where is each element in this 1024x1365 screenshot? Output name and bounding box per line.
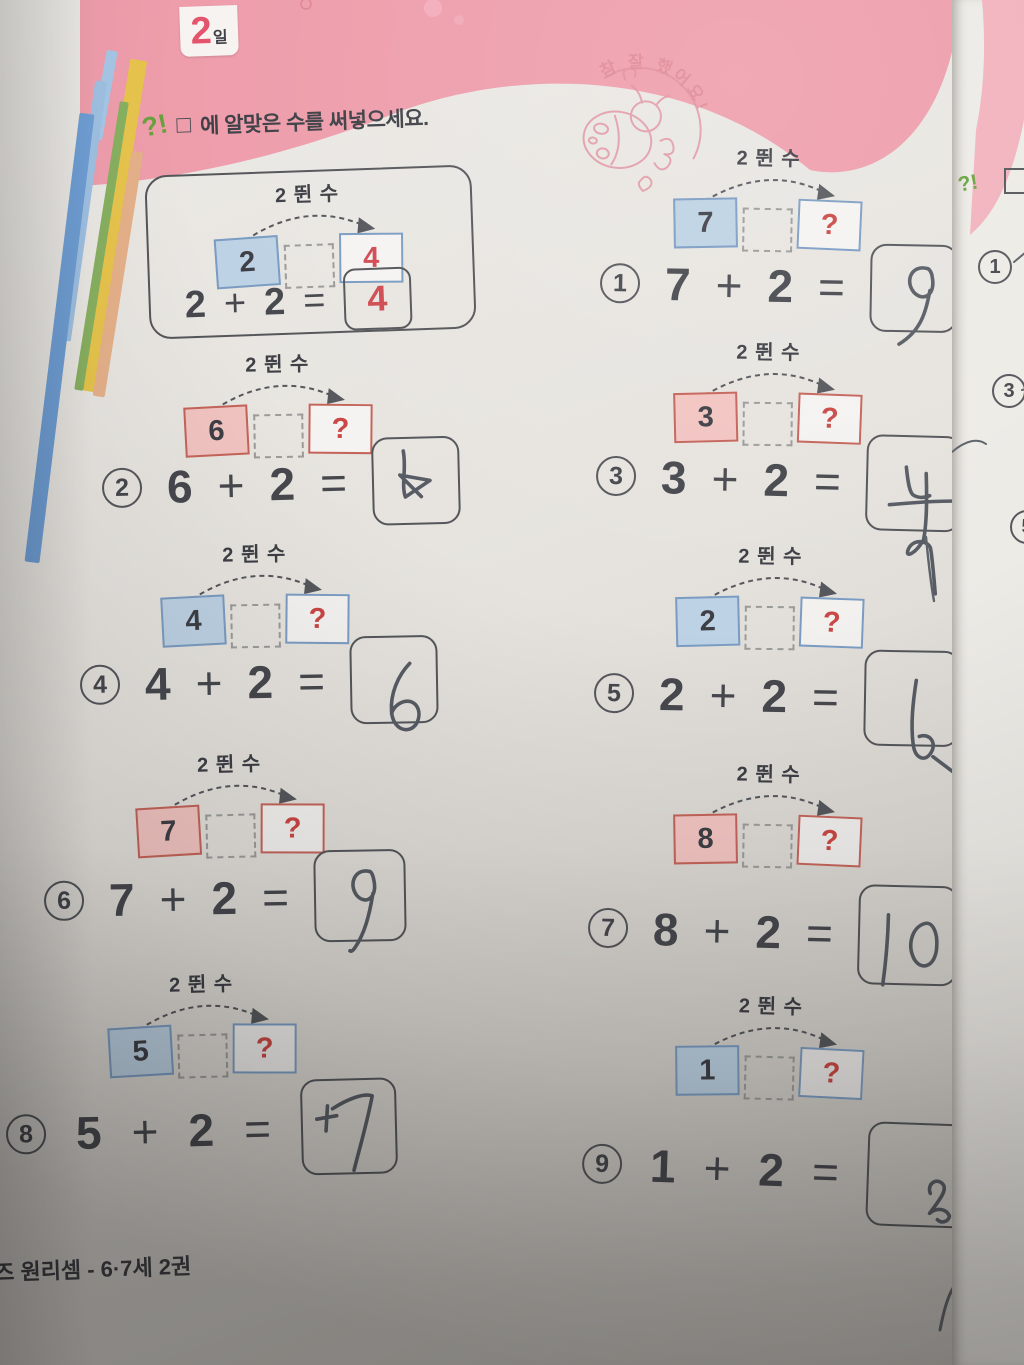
jump-diagram-5: 2 뛴 수 2? — [669, 539, 870, 651]
equation-6: 6 7+ 2= — [43, 849, 406, 947]
addend-a: 3 — [660, 450, 687, 505]
start-number-box: 5 — [107, 1025, 174, 1079]
equals-sign: = — [811, 1144, 840, 1199]
answer-box[interactable] — [865, 434, 963, 532]
middle-empty-box[interactable] — [742, 824, 793, 869]
answer-box[interactable] — [313, 849, 407, 943]
plus-sign: + — [131, 1104, 159, 1159]
equation-4: 4 4+ 2= — [79, 635, 438, 729]
problem-number: 3 — [596, 456, 637, 497]
day-tab: 2 일 — [179, 5, 239, 57]
addend-b: 2 — [247, 655, 274, 709]
blank-box-symbol: □ — [176, 111, 191, 139]
addend-b: 2 — [763, 453, 790, 508]
start-number-box: 1 — [675, 1045, 740, 1096]
plus-sign: + — [195, 656, 223, 710]
jump-diagram-4: 2 뛴 수 4? — [154, 536, 356, 649]
equals-sign: = — [805, 906, 833, 961]
problem-number: 5 — [594, 673, 635, 714]
addend-b: 2 — [269, 457, 296, 512]
plus-sign: + — [223, 282, 247, 326]
addend-a: 6 — [166, 459, 193, 514]
answer-box[interactable] — [371, 436, 461, 526]
jump-diagram-7: 2 뛴 수 8? — [667, 756, 869, 869]
jump-diagram-9: 2 뛴 수 1? — [669, 988, 872, 1103]
handwritten-answer — [315, 850, 457, 992]
jump-diagram-8: 2 뛴 수 5? — [101, 966, 304, 1081]
equation-9: 9 1+ 2= — [580, 1111, 972, 1229]
equals-sign: = — [298, 654, 326, 708]
addend-a: 2 — [659, 667, 686, 721]
sprout-question-icon: ?! — [139, 108, 170, 144]
day-suffix: 일 — [212, 23, 228, 47]
result-question-box[interactable]: ? — [799, 596, 865, 648]
pencil-tick — [920, 535, 940, 605]
result-question-box[interactable]: ? — [261, 803, 325, 853]
handwritten-answer — [302, 1078, 445, 1221]
answer-box[interactable] — [863, 650, 961, 748]
addend-a: 7 — [665, 257, 692, 311]
result-question-box[interactable]: ? — [796, 815, 862, 868]
problem-number: 9 — [581, 1143, 622, 1184]
next-page-pencil-marks — [952, 0, 1024, 600]
equals-sign: = — [818, 260, 846, 314]
equals-sign: = — [319, 455, 347, 510]
workbook-photo: 2 일 ?! □ 에 알맞은 수를 써넣으세요. 참 잘 했어요! 2 뛴 수 … — [0, 0, 1024, 1365]
middle-empty-box[interactable] — [744, 606, 794, 651]
plus-sign: + — [159, 872, 187, 926]
next-page-edge: ?! 1 3 5 — [952, 0, 1024, 1365]
addend-a: 5 — [75, 1105, 102, 1160]
example-panel: 2 뛴 수 2 4 2 + 2 = 4 — [144, 164, 477, 339]
addend-b: 2 — [211, 871, 238, 925]
ladybug-body-icon — [579, 106, 656, 173]
answer-box[interactable] — [300, 1077, 398, 1175]
addend-b: 2 — [758, 1142, 785, 1197]
equals-sign: = — [243, 1101, 271, 1156]
middle-empty-box[interactable] — [744, 1055, 795, 1100]
addend-a: 2 — [184, 283, 207, 327]
example-equation: 2 + 2 = 4 — [184, 267, 413, 337]
day-number: 2 — [190, 12, 212, 51]
handwritten-answer — [351, 636, 493, 778]
start-number-box: 7 — [135, 805, 202, 859]
equals-sign: = — [812, 670, 840, 724]
addend-a: 8 — [652, 902, 679, 957]
addend-a: 1 — [649, 1139, 676, 1194]
addend-a: 4 — [145, 657, 172, 711]
plus-sign: + — [703, 903, 731, 958]
addend-b: 2 — [767, 259, 794, 313]
plus-sign: + — [217, 458, 245, 513]
plus-sign: + — [703, 1140, 732, 1195]
handwritten-answer — [373, 436, 516, 579]
answer-box[interactable] — [869, 244, 959, 334]
equation-7: 7 8+ 2= — [587, 877, 959, 986]
problem-number: 2 — [102, 467, 143, 508]
equation-8: 8 5+ 2= — [5, 1077, 398, 1183]
problem-number: 4 — [80, 664, 121, 705]
answer-box[interactable] — [349, 635, 439, 725]
footer-series-title: 즈 원리셈 - 6·7세 2권 — [0, 1249, 192, 1288]
plus-sign: + — [715, 258, 743, 312]
addend-b: 2 — [755, 905, 782, 960]
equation-3: 3 3+ 2= — [595, 428, 963, 533]
problem-number: 1 — [600, 263, 641, 304]
example-answer-box: 4 — [342, 267, 412, 331]
start-number-box: 8 — [673, 813, 738, 864]
result-question-box[interactable]: ? — [798, 1047, 864, 1100]
jump-diagram-6: 2 뛴 수 7? — [129, 746, 332, 861]
addend-b: 2 — [263, 280, 286, 324]
plus-sign: + — [711, 451, 739, 506]
equation-5: 5 2+ 2= — [593, 645, 961, 747]
result-question-box[interactable]: ? — [233, 1023, 297, 1073]
start-number-box: 2 — [675, 596, 740, 648]
equation-2: 2 6+ 2= — [101, 436, 461, 533]
problem-number: 6 — [44, 880, 85, 921]
equation-1: 1 7+ 2= — [599, 239, 958, 333]
equals-sign: = — [262, 870, 290, 924]
addend-b: 2 — [188, 1103, 215, 1158]
addend-a: 7 — [109, 873, 136, 927]
plus-sign: + — [709, 668, 737, 722]
jump-diagram-1: 2 뛴 수 7? — [667, 140, 869, 253]
addend-b: 2 — [761, 669, 788, 723]
problem-number: 8 — [6, 1114, 47, 1155]
equals-sign: = — [302, 279, 326, 323]
problem-number: 7 — [588, 907, 629, 948]
answer-box[interactable] — [857, 884, 959, 986]
equals-sign: = — [813, 454, 841, 509]
middle-empty-box[interactable] — [177, 1033, 228, 1078]
